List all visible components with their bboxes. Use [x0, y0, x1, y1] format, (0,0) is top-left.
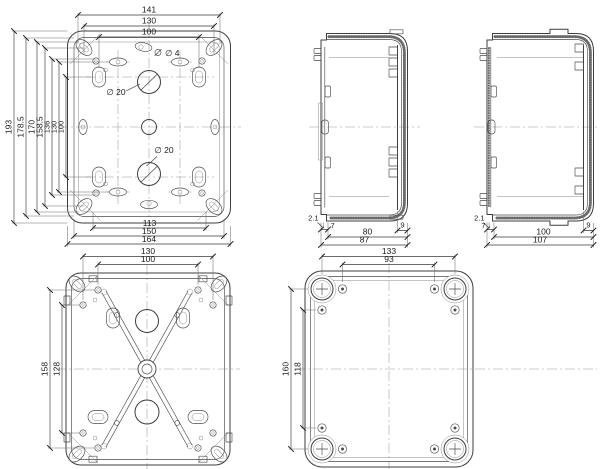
- side-small-molded-texture: [329, 37, 404, 218]
- dim-side-large-lip: 7: [481, 221, 485, 230]
- dim-side-small-lip: 7: [331, 221, 335, 230]
- dim-back-left-128: 128: [52, 362, 62, 376]
- side-large-molded-texture: [495, 37, 590, 218]
- front-top-tab: [134, 41, 161, 56]
- dim-cover-top-93: 93: [384, 254, 394, 264]
- side-large-cover-tabs: [575, 44, 584, 194]
- dim-cover-left-160: 160: [281, 362, 291, 376]
- dim-side-large-overall: 107: [533, 235, 547, 245]
- dim-front-top-141: 141: [142, 5, 156, 15]
- front-knockout-lower: [138, 163, 161, 186]
- dim-front-left-193: 193: [4, 120, 14, 134]
- dim-side-small-wall: 2.1: [308, 214, 318, 223]
- front-view: ∅ 20 ∅ 20 ∅ 4 141 130 100 193 178.5 170 …: [4, 5, 242, 247]
- back-view: 130 100 158 128: [40, 246, 241, 469]
- side-small-cover-tabs: [389, 47, 398, 177]
- dim-front-bottom-164: 164: [142, 234, 156, 244]
- back-ticks: [47, 254, 216, 451]
- dim-front-left-178_5: 178.5: [16, 116, 26, 138]
- drawing-sheet: ∅ 20 ∅ 20 ∅ 4 141 130 100 193 178.5 170 …: [0, 0, 600, 469]
- side-view-large: 2.1 7 9 100 107: [474, 29, 599, 248]
- dim-front-top-100: 100: [142, 27, 156, 37]
- front-centerlines: [58, 22, 241, 233]
- dim-back-top-100: 100: [141, 254, 155, 264]
- technical-drawing-canvas: ∅ 20 ∅ 20 ∅ 4 141 130 100 193 178.5 170 …: [0, 0, 600, 469]
- dim-front-left-100: 100: [57, 121, 66, 134]
- dim-side-small-edge: 9: [400, 220, 404, 229]
- label-knockout-upper: ∅ 20: [106, 87, 125, 97]
- dim-back-left-158: 158: [40, 362, 50, 376]
- label-hole-top: ∅ 4: [165, 48, 180, 58]
- cover-view: 133 93 160 118: [281, 246, 598, 469]
- side-view-small: 2.1 7 9 80 87: [308, 30, 420, 248]
- dim-side-large-edge: 9: [586, 220, 590, 229]
- dim-side-small-overall: 87: [360, 235, 370, 245]
- dim-front-top-130: 130: [142, 16, 156, 26]
- dim-cover-left-118: 118: [293, 362, 303, 376]
- back-center-hub: [138, 360, 156, 378]
- label-knockout-lower: ∅ 20: [154, 145, 173, 155]
